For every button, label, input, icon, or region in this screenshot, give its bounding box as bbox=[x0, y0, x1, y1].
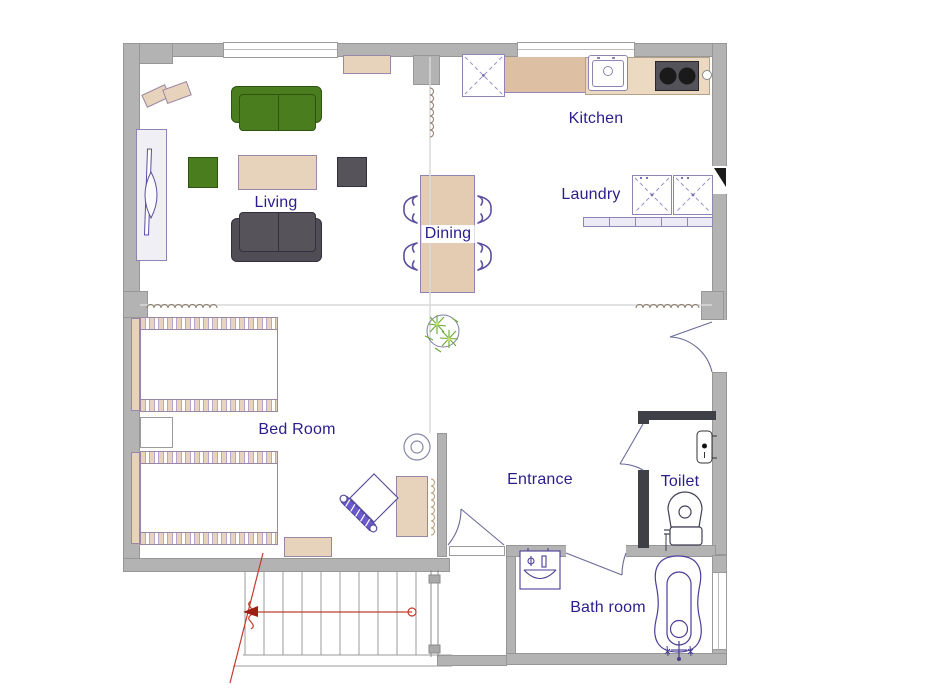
toilet-door bbox=[620, 424, 643, 470]
bed-2-foot-edge bbox=[140, 532, 278, 545]
bed-2-headboard bbox=[131, 452, 140, 544]
wall-bedroom-bottom bbox=[123, 558, 450, 572]
kitchen-sink bbox=[588, 55, 628, 91]
coffee-table bbox=[238, 155, 317, 190]
cooktop bbox=[655, 61, 699, 91]
laundry-shelf bbox=[583, 217, 713, 227]
bed-2-frame bbox=[140, 451, 278, 545]
potted-plant-icon bbox=[425, 315, 459, 352]
label-bedroom: Bed Room bbox=[258, 421, 335, 439]
wall-toilet-left-stub bbox=[638, 411, 649, 424]
window-bathroom bbox=[712, 572, 727, 650]
round-table-icon bbox=[404, 434, 430, 460]
wall-toilet-left bbox=[638, 470, 649, 548]
wall-left-pier bbox=[123, 291, 148, 318]
armchair-green bbox=[188, 157, 218, 188]
bed-1-foot-edge bbox=[140, 399, 278, 412]
bed-2-head-edge bbox=[140, 451, 278, 464]
opening-right-marker bbox=[712, 166, 727, 194]
wall-right-pier bbox=[701, 291, 724, 320]
wall-stub-kitchen bbox=[413, 55, 440, 85]
opening-balcony-door bbox=[712, 320, 727, 372]
opening-squiggle-vertical bbox=[430, 88, 434, 137]
desk-squiggle bbox=[431, 479, 435, 535]
desk bbox=[396, 476, 428, 537]
armchair-dark bbox=[337, 157, 367, 187]
washing-machine-2 bbox=[673, 175, 713, 215]
floor-plan: Living Dining Kitchen Laundry Bed Room E… bbox=[0, 0, 933, 700]
sofa-green-seat bbox=[239, 94, 316, 131]
label-dining: Dining bbox=[422, 225, 475, 243]
label-kitchen: Kitchen bbox=[569, 110, 624, 128]
toilet-fixture-icon bbox=[664, 492, 702, 551]
wall-shelf bbox=[343, 55, 391, 74]
label-toilet: Toilet bbox=[661, 473, 700, 491]
washing-machine-1 bbox=[632, 175, 672, 215]
wall-right-lower bbox=[712, 372, 727, 555]
balcony-door bbox=[670, 322, 712, 372]
label-laundry: Laundry bbox=[561, 186, 620, 204]
opening-bath-door bbox=[566, 545, 626, 557]
stair-railing bbox=[429, 570, 440, 657]
bed-1-headboard bbox=[131, 318, 140, 411]
wall-entrance-closet bbox=[437, 433, 447, 557]
label-bathroom: Bath room bbox=[570, 599, 646, 617]
window-top-left bbox=[223, 42, 338, 58]
label-living: Living bbox=[254, 194, 297, 212]
wall-landing-bottom bbox=[437, 655, 507, 666]
label-entrance: Entrance bbox=[507, 471, 573, 489]
refrigerator bbox=[462, 54, 505, 97]
wall-bath-left bbox=[506, 545, 516, 660]
bathtub-icon bbox=[655, 556, 702, 661]
sofa-dark-seat bbox=[239, 212, 316, 252]
bench bbox=[284, 537, 332, 557]
cabinet bbox=[136, 129, 167, 261]
desk-chair bbox=[338, 469, 403, 534]
bed-1-frame bbox=[140, 317, 278, 412]
decor-cushion-2 bbox=[162, 81, 192, 104]
entrance-door bbox=[448, 509, 504, 545]
opening-squiggle-left bbox=[147, 305, 217, 308]
stair-direction-annotation bbox=[230, 553, 416, 683]
stair-treads bbox=[233, 572, 452, 666]
counter-left bbox=[505, 57, 585, 93]
nightstand bbox=[140, 417, 173, 448]
wall-toilet-top bbox=[638, 411, 716, 420]
wall-right-upper bbox=[712, 43, 727, 168]
opening-squiggle-right bbox=[636, 305, 699, 308]
threshold-stair-door bbox=[449, 546, 505, 556]
wall-bath-bottom bbox=[506, 653, 727, 665]
bed-1-head-edge bbox=[140, 317, 278, 330]
